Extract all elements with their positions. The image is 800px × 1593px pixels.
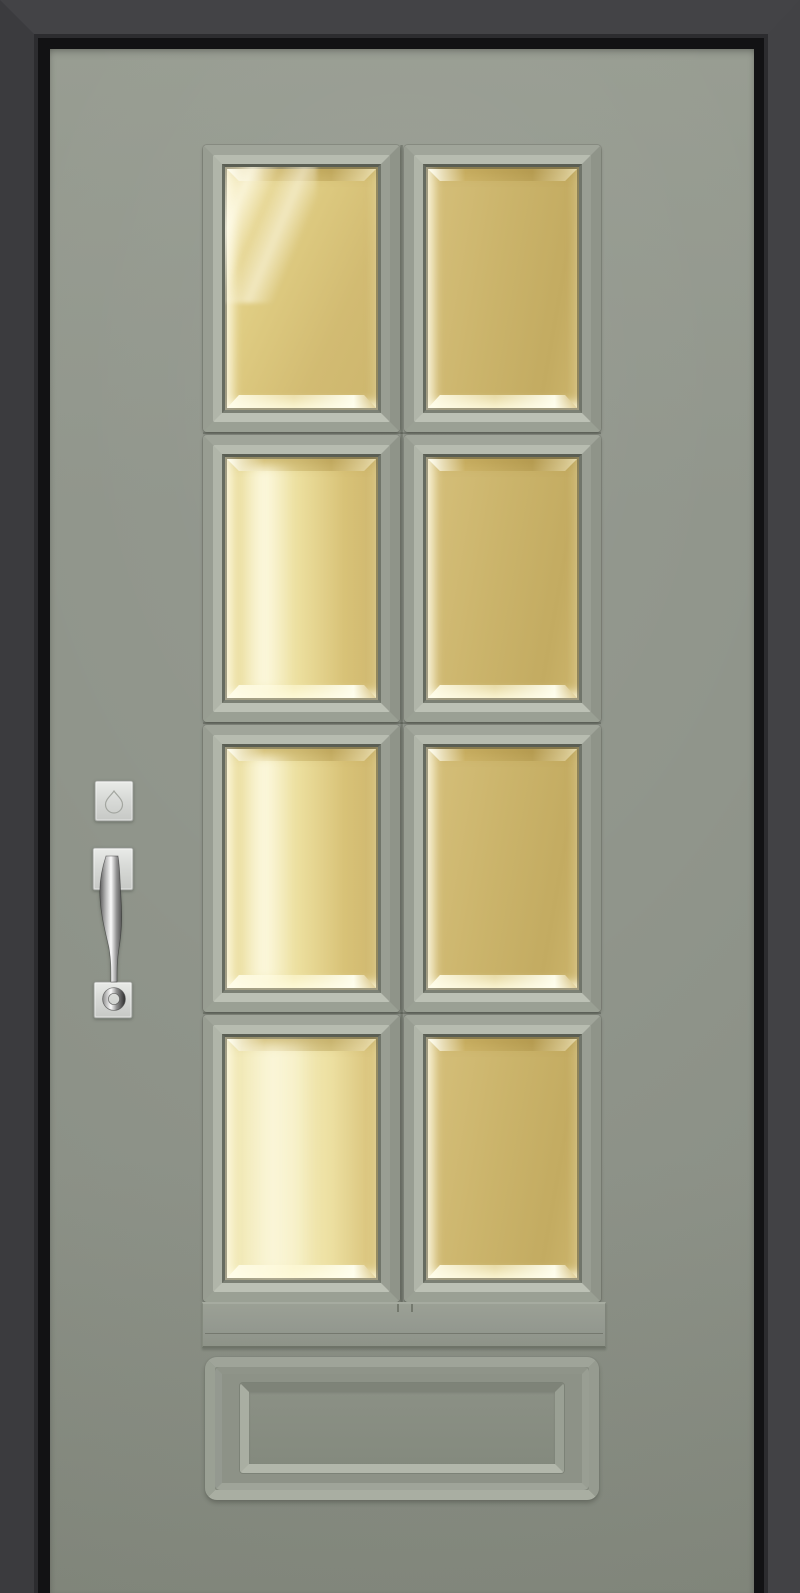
pane-glazing-recess — [423, 454, 582, 703]
pane-moulding-bevel — [414, 1025, 591, 1292]
pane-moulding-bevel — [414, 735, 591, 1002]
door-hardware — [86, 770, 142, 1030]
amber-glass — [426, 167, 579, 410]
pane-glazing-recess — [423, 744, 582, 993]
glass-reflection — [237, 757, 295, 981]
pane-moulding-bevel — [213, 1025, 390, 1292]
amber-glass — [225, 457, 378, 700]
pane-moulding-bevel — [414, 445, 591, 712]
deadbolt-rosette — [95, 781, 133, 821]
door-slab — [50, 49, 754, 1593]
pane-glazing-recess — [222, 164, 381, 413]
glass-pane-r1c2 — [404, 145, 601, 432]
bottom-panel-moulding — [215, 1367, 589, 1490]
glass-pane-r2c2 — [404, 435, 601, 722]
sill-joint-notch — [397, 1304, 399, 1312]
rail-seam-1 — [203, 432, 601, 435]
glass-pane-r3c2 — [404, 725, 601, 1012]
door-photo — [0, 0, 800, 1593]
pane-glazing-recess — [423, 1034, 582, 1283]
glass-pane-r2c1 — [203, 435, 400, 722]
pane-glazing-recess — [222, 744, 381, 993]
amber-glass — [225, 1037, 378, 1280]
glass-pane-r4c2 — [404, 1015, 601, 1302]
sill-rail — [202, 1302, 606, 1348]
glass-reflection — [237, 467, 295, 691]
pane-glazing-recess — [423, 164, 582, 413]
pane-moulding-bevel — [414, 155, 591, 422]
glass-pane-r3c1 — [203, 725, 400, 1012]
sill-joint-notch — [411, 1304, 413, 1312]
frame-inner-step — [34, 34, 768, 1593]
pane-moulding-bevel — [213, 445, 390, 712]
jamb-shadow-reveal — [38, 38, 764, 1593]
amber-glass — [225, 167, 378, 410]
door-frame — [0, 0, 800, 1593]
handleset — [93, 848, 133, 1018]
amber-glass — [225, 747, 378, 990]
glass-reflection — [225, 167, 317, 303]
rail-seam-2 — [203, 722, 601, 725]
pane-moulding-bevel — [213, 735, 390, 1002]
handle-grip — [100, 856, 122, 982]
pane-glazing-recess — [222, 454, 381, 703]
pane-glazing-recess — [222, 1034, 381, 1283]
amber-glass — [426, 457, 579, 700]
rail-seam-3 — [203, 1012, 601, 1015]
bottom-panel — [205, 1357, 599, 1500]
amber-glass — [426, 1037, 579, 1280]
pane-moulding-bevel — [213, 155, 390, 422]
glass-pane-r4c1 — [203, 1015, 400, 1302]
amber-glass — [426, 747, 579, 990]
glass-pane-r1c1 — [203, 145, 400, 432]
glass-reflection — [231, 1044, 315, 1272]
bottom-panel-raised-face — [240, 1383, 564, 1473]
